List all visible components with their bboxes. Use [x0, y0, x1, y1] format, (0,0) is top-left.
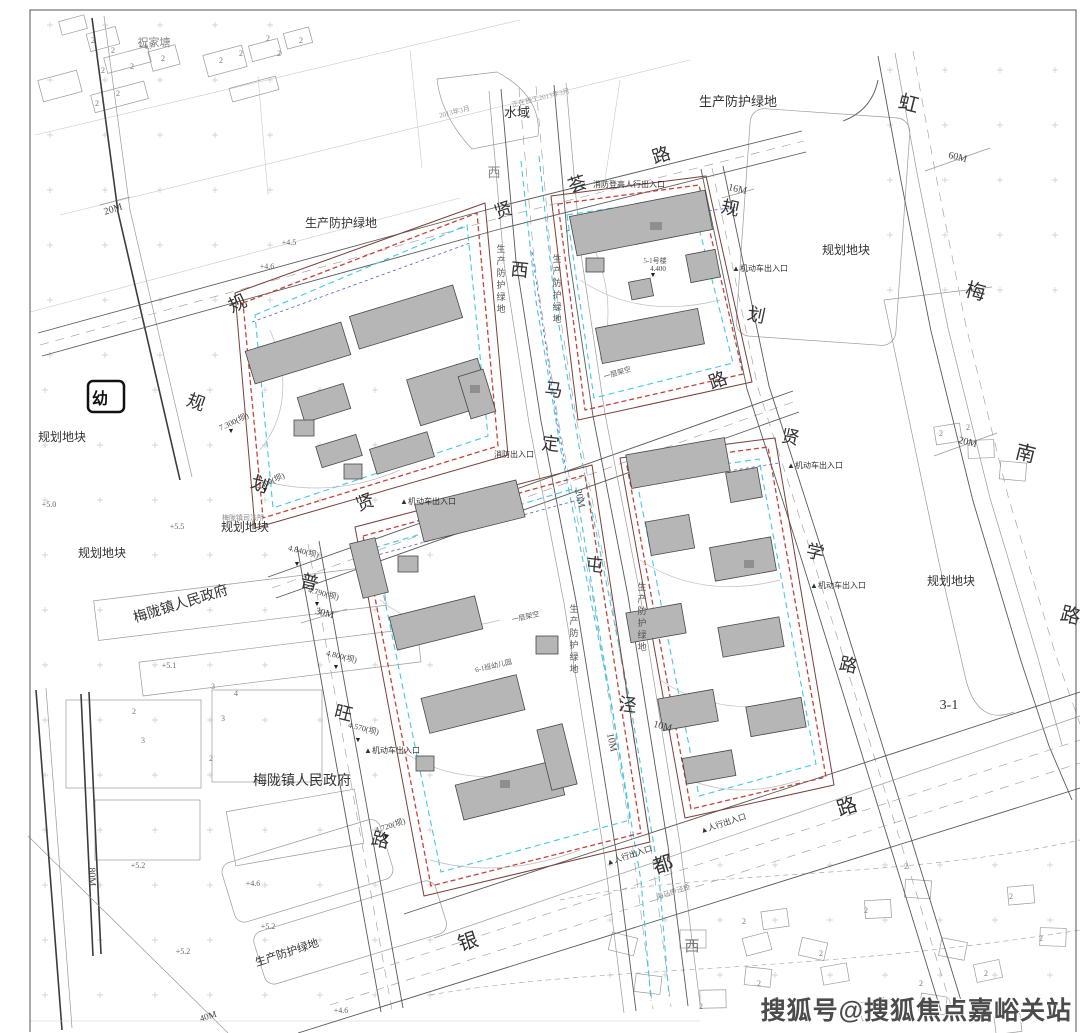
story-numbers-label: 2 [116, 89, 120, 98]
benchmarks-label: ▼ [355, 736, 362, 744]
road-name-characters-label: 规 [225, 291, 250, 317]
villa-outline [973, 959, 1002, 982]
small-notes-label: 5-1号楼 [643, 256, 666, 265]
story-numbers-label: 3 [211, 682, 215, 691]
entrances-label: ▲机动车出入口 [732, 263, 788, 273]
entrances-label: ▲机动车出入口 [787, 460, 843, 470]
story-numbers-label: 2 [984, 969, 988, 978]
dimensions-label: 16M [727, 182, 748, 197]
road-name-characters-label: 学 [804, 540, 826, 563]
spot-elevations-label: +4.6 [246, 879, 261, 888]
benchmarks-label: ▼ [383, 833, 390, 841]
site-plan: 幼 贤荟路西西马定屯泾规划路贤学路贤普旺路规规划虹梅南路银都路西水域生产防护绿地… [0, 0, 1080, 1033]
road-name-characters-label: 规 [184, 390, 208, 415]
dimensions-label: 20M [572, 488, 587, 509]
road-name-characters-label: 定 [541, 433, 561, 455]
small-notes-label: 一层架空 [603, 364, 632, 381]
story-numbers-label: 2 [904, 862, 908, 871]
road-name-characters-label: 西 [487, 165, 500, 180]
benchmarks-label: ▼ [262, 486, 269, 494]
story-numbers-label: 2 [864, 906, 868, 915]
area-labels-label: 生产防护绿地 [699, 94, 777, 109]
context-buildings-northwest [38, 15, 313, 113]
road-name-characters-label: 贤 [779, 425, 801, 448]
story-numbers-label: 3 [221, 714, 225, 723]
story-numbers-label: 2 [966, 423, 970, 432]
villa-outline [821, 963, 850, 985]
road-name-characters-label: 荟 [565, 172, 588, 197]
benchmarks-label: ▼ [333, 663, 340, 671]
story-numbers-label: 2 [819, 949, 823, 958]
watermark: 搜狐号@搜狐焦点嘉峪关站 [761, 991, 1072, 1027]
area-labels-label: 规划地块 [822, 242, 870, 257]
story-numbers-label: 2 [101, 66, 105, 75]
road-name-characters-label: 规 [719, 196, 741, 219]
small-notes-label: 一层架空 [511, 609, 540, 624]
kindergarten-label: 幼 [92, 389, 108, 408]
small-notes-label: 6-1班幼儿园 [474, 657, 512, 674]
green-belt-vertical-label: 生产防护绿地 [496, 243, 505, 314]
story-numbers-label: 2 [742, 917, 746, 926]
spot-elevations-label: +4.5 [282, 238, 297, 247]
roads-layer [38, 51, 1080, 1033]
area-labels-label: 规划地块 [78, 545, 126, 560]
survey-marks-layer [42, 22, 1058, 998]
entrances-label: 消防登高人行出入口 [593, 179, 665, 189]
spot-elevations-label: +5.2 [131, 861, 146, 870]
spot-elevations-label: +4.7 [139, 42, 154, 51]
road-name-characters-label: 西 [684, 939, 699, 955]
road-name-characters-label: 路 [1058, 602, 1080, 629]
spot-elevations-label: +4.6 [260, 262, 275, 271]
dimensions-label: 30M [314, 606, 335, 621]
villa-outline [742, 932, 772, 956]
road-name-characters-label: 路 [834, 793, 860, 821]
road-name-characters-label: 屯 [585, 554, 605, 576]
spot-elevations-label: +5.5 [170, 522, 185, 531]
benchmarks-label: 4.840(坝) [287, 543, 320, 559]
spot-elevations-label: +5.1 [162, 661, 177, 670]
dimensions-label: 40M [198, 1009, 217, 1024]
villa-outline [865, 899, 892, 918]
spot-elevations-label: +4.6 [334, 1006, 349, 1015]
spot-elevations-label: +5.2 [261, 922, 276, 931]
sheet-frame [30, 10, 1076, 1032]
story-numbers-label: 2 [219, 56, 223, 65]
green-belt-vertical-label: 生产防护绿地 [569, 603, 578, 674]
story-numbers-label: 2 [1009, 892, 1013, 901]
benchmarks-label: ▼ [314, 600, 321, 608]
area-labels-label: 梅陇镇人民政府 [132, 582, 230, 626]
area-labels-label: 规划地块 [38, 429, 86, 444]
site-plan-svg: 幼 贤荟路西西马定屯泾规划路贤学路贤普旺路规规划虹梅南路银都路西水域生产防护绿地… [0, 0, 1080, 1033]
road-name-characters-label: 泾 [618, 694, 638, 716]
story-numbers-label: 2 [939, 429, 943, 438]
story-numbers-label: 2 [299, 36, 303, 45]
story-numbers-label: 2 [239, 49, 243, 58]
spot-elevations-label: +5.0 [42, 500, 57, 509]
villa-outline [608, 932, 638, 956]
road-name-characters-label: 路 [837, 653, 859, 676]
area-labels-label: 规划地块 [927, 573, 975, 588]
road-name-characters-label: 划 [745, 303, 767, 326]
story-numbers-label: 2 [1039, 934, 1043, 943]
villa-outline [798, 937, 827, 960]
entrances-label: 消防出入口 [494, 449, 534, 459]
entrances-label: ▲机动车出入口 [364, 745, 420, 755]
benchmarks-label: 4.790(坝) [307, 585, 340, 601]
story-numbers-label: 2 [111, 46, 115, 55]
parcel-3-1 [100, 148, 1014, 715]
story-numbers-label: 2 [919, 979, 923, 988]
road-name-characters-label: 银 [455, 928, 481, 956]
small-notes-label: 梅陇镇司法所 [222, 513, 264, 522]
entrances-label: ▲机动车出入口 [400, 496, 456, 506]
story-numbers-label: 2 [277, 49, 281, 58]
dimensions-label: 80M [86, 867, 98, 886]
story-numbers-label: 2 [209, 754, 213, 763]
spot-elevations-label: +5.2 [176, 947, 191, 956]
road-name-characters-label: 南 [1013, 440, 1038, 467]
entrances-label: ▲机动车出入口 [810, 580, 866, 590]
area-labels-label: 生产防护绿地 [305, 215, 377, 230]
context-layer [28, 15, 1080, 1033]
story-numbers-label: 2 [132, 707, 136, 716]
benchmarks-label: ▼ [228, 427, 235, 435]
benchmarks-label: 4.800(坝) [325, 648, 358, 664]
road-name-characters-label: 马 [544, 379, 564, 401]
story-numbers-label: 4 [234, 689, 238, 698]
villa-outline [1040, 928, 1067, 947]
area-labels-label: 3-1 [940, 698, 959, 713]
road-name-characters-label: 都 [650, 851, 676, 879]
road-name-characters-label: 梅 [963, 278, 988, 305]
road-name-characters-label: 西 [510, 259, 530, 281]
story-numbers-label: 2 [266, 34, 270, 43]
story-numbers-label: 2 [130, 62, 134, 71]
benchmarks-label: ▼ [294, 560, 301, 568]
benchmarks-label: ▼ [650, 271, 657, 279]
area-labels-label: 生产防护绿地 [253, 935, 320, 969]
green-belt-vertical-label: 生产防护绿地 [552, 253, 561, 324]
dimensions-label: 60M [947, 150, 968, 165]
story-numbers-label: 2 [699, 1002, 703, 1011]
area-labels-label: 梅陇镇人民政府 [253, 773, 351, 789]
map-labels-layer: 贤荟路西西马定屯泾规划路贤学路贤普旺路规规划虹梅南路银都路西水域生产防护绿地生产… [38, 34, 1080, 1024]
story-numbers-label: 2 [161, 54, 165, 63]
story-numbers-label: 2 [95, 99, 99, 108]
villa-outline [904, 879, 931, 899]
road-name-characters-label: 路 [706, 368, 730, 393]
story-numbers-label: 3 [141, 736, 145, 745]
story-numbers-label: 2 [91, 36, 95, 45]
road-name-characters-label: 虹 [896, 90, 921, 117]
kindergarten-marker: 幼 [88, 381, 124, 412]
villa-outline [634, 973, 662, 994]
story-numbers-label: 2 [757, 979, 761, 988]
villa-outline [700, 990, 726, 1008]
small-notes-label: 2013年3月 [438, 103, 471, 119]
context-buildings-government [66, 565, 421, 865]
